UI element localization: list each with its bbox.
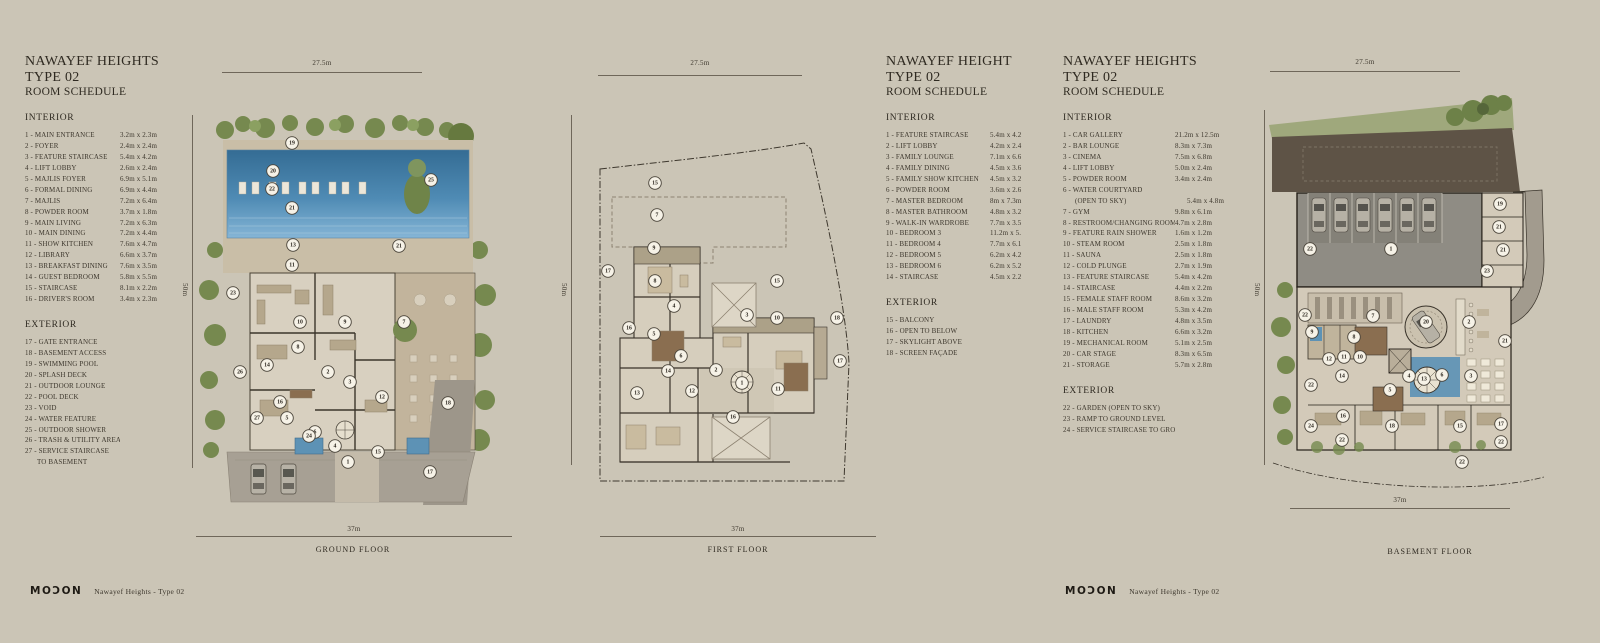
room-dimension: 7.5m x 6.8m bbox=[1175, 153, 1225, 164]
room-dimension: 3.6m x 2.6 bbox=[990, 186, 1044, 197]
room-label: 21 - STORAGE bbox=[1063, 361, 1175, 372]
room-dimension: 3.4m x 2.4m bbox=[1175, 175, 1225, 186]
schedule-row: 9 - MAIN LIVING7.2m x 6.3m bbox=[25, 219, 193, 230]
room-dimension: 11.2m x 5. bbox=[990, 229, 1044, 240]
plan-marker-number: 13 bbox=[290, 243, 296, 249]
room-label: 5 - FAMILY SHOW KITCHEN bbox=[886, 175, 990, 186]
plan-marker-number: 15 bbox=[375, 450, 381, 456]
room-label: 17 - GATE ENTRANCE bbox=[25, 338, 120, 349]
room-label: 2 - BAR LOUNGE bbox=[1063, 142, 1175, 153]
plan-marker-number: 13 bbox=[1421, 377, 1427, 383]
room-dimension: 8.3m x 7.3m bbox=[1175, 142, 1225, 153]
room-label: 5 - MAJLIS FOYER bbox=[25, 175, 120, 186]
plan-marker-number: 22 bbox=[1459, 460, 1465, 466]
room-label: 3 - CINEMA bbox=[1063, 153, 1175, 164]
plan-marker-number: 3 bbox=[349, 380, 352, 386]
room-label: 12 - COLD PLUNGE bbox=[1063, 262, 1175, 273]
room-label: TO BASEMENT bbox=[25, 458, 132, 469]
plan-marker-number: 9 bbox=[653, 246, 656, 252]
plan-marker-number: 8 bbox=[297, 345, 300, 351]
plan-marker-number: 22 bbox=[1302, 313, 1308, 319]
room-label: 11 - BEDROOM 4 bbox=[886, 240, 990, 251]
schedule-title-line: TYPE 02 bbox=[1063, 70, 1225, 86]
plan-marker-number: 2 bbox=[715, 368, 718, 374]
schedule-row: 2 - FOYER2.4m x 2.4m bbox=[25, 142, 193, 153]
plan-marker-number: 23 bbox=[230, 291, 236, 297]
room-label: 17 - SKYLIGHT ABOVE bbox=[886, 338, 990, 349]
exterior-heading: EXTERIOR bbox=[886, 298, 1044, 308]
room-dimension: 6.6m x 3.7m bbox=[120, 251, 193, 262]
plan-marker-number: 22 bbox=[1498, 440, 1504, 446]
room-label: 2 - LIFT LOBBY bbox=[886, 142, 990, 153]
schedule-row: 23 - VOID bbox=[25, 404, 193, 415]
room-dimension: 6.9m x 5.1m bbox=[120, 175, 193, 186]
schedule-row: 16 - MALE STAFF ROOM5.3m x 4.2m bbox=[1063, 306, 1225, 317]
plan-marker-number: 15 bbox=[652, 181, 658, 187]
room-label: 1 - CAR GALLERY bbox=[1063, 131, 1175, 142]
schedule-row: 8 - RESTROOM/CHANGING ROOM4.7m x 2.8m bbox=[1063, 219, 1225, 230]
floor-label-ground: GROUND FLOOR bbox=[195, 545, 511, 554]
schedule-row: 9 - WALK-IN WARDROBE7.7m x 3.5 bbox=[886, 219, 1044, 230]
plan-marker-number: 22 bbox=[1307, 247, 1313, 253]
schedule-row: 2 - LIFT LOBBY4.2m x 2.4 bbox=[886, 142, 1044, 153]
schedule-row: 16 - OPEN TO BELOW bbox=[886, 327, 1044, 338]
schedule-row: 26 - TRASH & UTILITY AREA bbox=[25, 436, 193, 447]
dimension-label: 27.5m bbox=[1270, 58, 1460, 66]
schedule-row: 14 - GUEST BEDROOM5.8m x 5.5m bbox=[25, 273, 193, 284]
water-courtyard bbox=[1410, 357, 1460, 397]
room-dimension: 4.4m x 2.2m bbox=[1175, 284, 1225, 295]
plan-marker-number: 18 bbox=[1389, 424, 1395, 430]
dimension-line bbox=[600, 536, 876, 537]
dimension-line bbox=[192, 115, 193, 468]
plan-marker-number: 8 bbox=[1353, 335, 1356, 341]
room-label: 14 - GUEST BEDROOM bbox=[25, 273, 120, 284]
room-dimension: 8m x 7.3m bbox=[990, 197, 1044, 208]
plan-marker-number: 4 bbox=[334, 444, 337, 450]
schedule-row: 6 - FORMAL DINING6.9m x 4.4m bbox=[25, 186, 193, 197]
room-label: 8 - RESTROOM/CHANGING ROOM bbox=[1063, 219, 1175, 230]
feature-staircase bbox=[336, 421, 354, 439]
room-label: 4 - LIFT LOBBY bbox=[25, 164, 120, 175]
interior-list: 1 - CAR GALLERY21.2m x 12.5m2 - BAR LOUN… bbox=[1063, 131, 1225, 372]
plan-marker-number: 10 bbox=[1357, 355, 1363, 361]
room-label: 15 - STAIRCASE bbox=[25, 284, 120, 295]
schedule-row: 17 - SKYLIGHT ABOVE bbox=[886, 338, 1044, 349]
interior-list: 1 - FEATURE STAIRCASE5.4m x 4.22 - LIFT … bbox=[886, 131, 1044, 284]
plan-marker-number: 14 bbox=[665, 369, 671, 375]
room-label: 7 - GYM bbox=[1063, 208, 1175, 219]
room-dimension: 2.6m x 2.4m bbox=[120, 164, 193, 175]
room-label: 18 - KITCHEN bbox=[1063, 328, 1175, 339]
schedule-title-line: ROOM SCHEDULE bbox=[25, 85, 193, 99]
schedule-row: 15 - STAIRCASE8.1m x 2.2m bbox=[25, 284, 193, 295]
room-dimension: 4.8m x 3.5m bbox=[1175, 317, 1225, 328]
schedule-row: 24 - SERVICE STAIRCASE TO GROUND bbox=[1063, 426, 1225, 437]
schedule-row: 11 - SHOW KITCHEN7.6m x 4.7m bbox=[25, 240, 193, 251]
room-dimension: 4.5m x 2.2 bbox=[990, 273, 1044, 284]
room-label: 12 - BEDROOM 5 bbox=[886, 251, 990, 262]
schedule-row: 4 - FAMILY DINING4.5m x 3.6 bbox=[886, 164, 1044, 175]
room-dimension: 6.6m x 3.2m bbox=[1175, 328, 1225, 339]
schedule-row: 7 - MAJLIS7.2m x 6.4m bbox=[25, 197, 193, 208]
exterior-list: 15 - BALCONY16 - OPEN TO BELOW17 - SKYLI… bbox=[886, 316, 1044, 360]
plan-marker-number: 1 bbox=[741, 381, 744, 387]
schedule-row: 18 - KITCHEN6.6m x 3.2m bbox=[1063, 328, 1225, 339]
earth-fill bbox=[1272, 128, 1520, 192]
schedule-row: 8 - POWDER ROOM3.7m x 1.8m bbox=[25, 208, 193, 219]
first-floor-plan: 157917815431018165621417113121116 bbox=[560, 105, 860, 510]
exterior-heading: EXTERIOR bbox=[25, 320, 193, 330]
water-feature bbox=[407, 438, 429, 454]
plan-marker-number: 27 bbox=[254, 416, 260, 422]
room-dimension: 7.2m x 6.4m bbox=[120, 197, 193, 208]
schedule-row: 3 - CINEMA7.5m x 6.8m bbox=[1063, 153, 1225, 164]
plan-marker-number: 11 bbox=[1341, 355, 1347, 361]
plan-marker-number: 3 bbox=[1470, 374, 1473, 380]
swimming-pool bbox=[223, 140, 473, 273]
room-dimension: 2.4m x 2.4m bbox=[120, 142, 193, 153]
schedule-row: 12 - COLD PLUNGE2.7m x 1.9m bbox=[1063, 262, 1225, 273]
schedule-row: 23 - RAMP TO GROUND LEVEL bbox=[1063, 415, 1225, 426]
footer-left: MOƆON Nawayef Heights - Type 02 bbox=[30, 584, 184, 598]
plan-marker-number: 22 bbox=[269, 187, 275, 193]
schedule-row: 8 - MASTER BATHROOM4.8m x 3.2 bbox=[886, 208, 1044, 219]
schedule-row: 19 - SWIMMING POOL bbox=[25, 360, 193, 371]
room-label: 19 - SWIMMING POOL bbox=[25, 360, 120, 371]
room-schedule-first: NAWAYEF HEIGHT TYPE 02 ROOM SCHEDULE INT… bbox=[886, 54, 1044, 360]
schedule-row: 7 - GYM9.8m x 6.1m bbox=[1063, 208, 1225, 219]
plan-marker-number: 8 bbox=[654, 279, 657, 285]
room-dimension: 6.9m x 4.4m bbox=[120, 186, 193, 197]
plan-marker-number: 22 bbox=[1339, 438, 1345, 444]
plan-marker-number: 17 bbox=[427, 470, 433, 476]
schedule-row: 27 - SERVICE STAIRCASE bbox=[25, 447, 193, 458]
room-label: 7 - MASTER BEDROOM bbox=[886, 197, 990, 208]
schedule-row: 21 - STORAGE5.7m x 2.8m bbox=[1063, 361, 1225, 372]
room-label: 9 - MAIN LIVING bbox=[25, 219, 120, 230]
plan-marker-number: 1 bbox=[347, 460, 350, 466]
plan-marker-number: 18 bbox=[445, 401, 451, 407]
plan-marker-number: 21 bbox=[396, 244, 402, 250]
interior-list: 1 - MAIN ENTRANCE3.2m x 2.3m2 - FOYER2.4… bbox=[25, 131, 193, 306]
schedule-row: 11 - BEDROOM 47.7m x 6.1 bbox=[886, 240, 1044, 251]
schedule-row: 1 - MAIN ENTRANCE3.2m x 2.3m bbox=[25, 131, 193, 142]
room-label: 2 - FOYER bbox=[25, 142, 120, 153]
room-dimension: 7.6m x 4.7m bbox=[120, 240, 193, 251]
schedule-row: 11 - SAUNA2.5m x 1.8m bbox=[1063, 251, 1225, 262]
room-dimension: 3.2m x 2.3m bbox=[120, 131, 193, 142]
room-dimension: 7.7m x 3.5 bbox=[990, 219, 1044, 230]
schedule-row: 5 - FAMILY SHOW KITCHEN4.5m x 3.2 bbox=[886, 175, 1044, 186]
room-dimension: 5.4m x 4.2m bbox=[120, 153, 193, 164]
room-label: 16 - MALE STAFF ROOM bbox=[1063, 306, 1175, 317]
room-dimension: 5.7m x 2.8m bbox=[1175, 361, 1225, 372]
schedule-row: 12 - LIBRARY6.6m x 3.7m bbox=[25, 251, 193, 262]
room-label: 5 - POWDER ROOM bbox=[1063, 175, 1175, 186]
room-label: 20 - CAR STAGE bbox=[1063, 350, 1175, 361]
plan-marker-number: 22 bbox=[1308, 383, 1314, 389]
plan-marker-number: 18 bbox=[834, 316, 840, 322]
plan-marker-number: 1 bbox=[1390, 247, 1393, 253]
schedule-row-continued: TO BASEMENT bbox=[25, 458, 193, 469]
plan-marker-number: 21 bbox=[1500, 248, 1506, 254]
schedule-row: 10 - STEAM ROOM2.5m x 1.8m bbox=[1063, 240, 1225, 251]
schedule-row: 6 - POWDER ROOM3.6m x 2.6 bbox=[886, 186, 1044, 197]
room-dimension: 5.0m x 2.4m bbox=[1175, 164, 1225, 175]
plan-marker-number: 20 bbox=[270, 169, 276, 175]
room-dimension: 7.6m x 3.5m bbox=[120, 262, 193, 273]
plan-marker-number: 17 bbox=[1498, 422, 1504, 428]
room-label: 8 - MASTER BATHROOM bbox=[886, 208, 990, 219]
room-dimension: 4.5m x 3.6 bbox=[990, 164, 1044, 175]
plan-marker-number: 7 bbox=[403, 320, 406, 326]
site-boundary bbox=[1273, 463, 1544, 487]
room-schedule-basement: NAWAYEF HEIGHTS TYPE 02 ROOM SCHEDULE IN… bbox=[1063, 54, 1225, 436]
schedule-row: 1 - FEATURE STAIRCASE5.4m x 4.2 bbox=[886, 131, 1044, 142]
schedule-row: 25 - OUTDOOR SHOWER bbox=[25, 426, 193, 437]
room-label: 19 - MECHANICAL ROOM bbox=[1063, 339, 1175, 350]
room-label: 26 - TRASH & UTILITY AREA bbox=[25, 436, 120, 447]
schedule-row: 13 - FEATURE STAIRCASE5.4m x 4.2m bbox=[1063, 273, 1225, 284]
plan-marker-number: 12 bbox=[689, 389, 695, 395]
schedule-row: 10 - BEDROOM 311.2m x 5. bbox=[886, 229, 1044, 240]
room-label: 13 - BEDROOM 6 bbox=[886, 262, 990, 273]
schedule-row: 5 - MAJLIS FOYER6.9m x 5.1m bbox=[25, 175, 193, 186]
room-label: 25 - OUTDOOR SHOWER bbox=[25, 426, 120, 437]
room-label: 12 - LIBRARY bbox=[25, 251, 120, 262]
dimension-line bbox=[598, 75, 802, 76]
plan-marker-number: 17 bbox=[837, 359, 843, 365]
footer-caption: Nawayef Heights - Type 02 bbox=[94, 587, 184, 596]
schedule-row: 16 - DRIVER'S ROOM3.4m x 2.3m bbox=[25, 295, 193, 306]
plan-marker-number: 4 bbox=[673, 304, 676, 310]
plan-marker-number: 17 bbox=[605, 269, 611, 275]
schedule-row: 19 - MECHANICAL ROOM5.1m x 2.5m bbox=[1063, 339, 1225, 350]
plan-marker-number: 19 bbox=[289, 141, 295, 147]
room-dimension: 4.8m x 3.2 bbox=[990, 208, 1044, 219]
schedule-row-continued: (OPEN TO SKY)5.4m x 4.8m bbox=[1063, 197, 1225, 208]
plan-marker-number: 26 bbox=[237, 370, 243, 376]
room-dimension: 21.2m x 12.5m bbox=[1175, 131, 1225, 142]
schedule-row: 3 - FEATURE STAIRCASE5.4m x 4.2m bbox=[25, 153, 193, 164]
footer-caption: Nawayef Heights - Type 02 bbox=[1129, 587, 1219, 596]
plan-marker-number: 11 bbox=[289, 263, 295, 269]
room-label: 10 - BEDROOM 3 bbox=[886, 229, 990, 240]
plan-marker-number: 9 bbox=[1311, 330, 1314, 336]
plan-marker-number: 24 bbox=[306, 434, 312, 440]
room-label: (OPEN TO SKY) bbox=[1063, 197, 1187, 208]
plan-marker-number: 16 bbox=[1340, 414, 1346, 420]
schedule-row: 18 - BASEMENT ACCESS bbox=[25, 349, 193, 360]
room-label: 16 - DRIVER'S ROOM bbox=[25, 295, 120, 306]
schedule-title-line: TYPE 02 bbox=[886, 70, 1044, 86]
room-label: 3 - FEATURE STAIRCASE bbox=[25, 153, 120, 164]
dimension-line bbox=[196, 536, 512, 537]
plan-marker-number: 5 bbox=[286, 416, 289, 422]
room-dimension: 4.2m x 2.4 bbox=[990, 142, 1044, 153]
schedule-row: 1 - CAR GALLERY21.2m x 12.5m bbox=[1063, 131, 1225, 142]
schedule-row: 18 - SCREEN FAÇADE bbox=[886, 349, 1044, 360]
schedule-row: 15 - BALCONY bbox=[886, 316, 1044, 327]
room-label: 11 - SAUNA bbox=[1063, 251, 1175, 262]
floor-label-first: FIRST FLOOR bbox=[598, 545, 878, 554]
schedule-row: 22 - POOL DECK bbox=[25, 393, 193, 404]
plan-marker-number: 14 bbox=[264, 363, 270, 369]
room-label: 4 - FAMILY DINING bbox=[886, 164, 990, 175]
plan-marker-number: 13 bbox=[634, 391, 640, 397]
room-label: 23 - RAMP TO GROUND LEVEL bbox=[1063, 415, 1175, 426]
plan-marker-number: 19 bbox=[1497, 202, 1503, 208]
plan-marker-number: 24 bbox=[1308, 424, 1314, 430]
room-dimension: 3.7m x 1.8m bbox=[120, 208, 193, 219]
exterior-list: 22 - GARDEN (OPEN TO SKY)23 - RAMP TO GR… bbox=[1063, 404, 1225, 437]
room-label: 27 - SERVICE STAIRCASE bbox=[25, 447, 120, 458]
room-label: 1 - MAIN ENTRANCE bbox=[25, 131, 120, 142]
plan-marker-number: 14 bbox=[1339, 374, 1345, 380]
room-label: 21 - OUTDOOR LOUNGE bbox=[25, 382, 120, 393]
plan-marker-number: 4 bbox=[1408, 374, 1411, 380]
room-label: 18 - BASEMENT ACCESS bbox=[25, 349, 120, 360]
room-label: 24 - SERVICE STAIRCASE TO GROUND bbox=[1063, 426, 1175, 437]
room-dimension: 9.8m x 6.1m bbox=[1175, 208, 1225, 219]
plan-marker-number: 25 bbox=[428, 178, 434, 184]
room-label: 20 - SPLASH DECK bbox=[25, 371, 120, 382]
room-label: 9 - FEATURE RAIN SHOWER bbox=[1063, 229, 1175, 240]
dimension-label: 27.5m bbox=[598, 59, 802, 67]
schedule-row: 22 - GARDEN (OPEN TO SKY) bbox=[1063, 404, 1225, 415]
room-label: 10 - MAIN DINING bbox=[25, 229, 120, 240]
dimension-line bbox=[222, 72, 422, 73]
plan-marker-number: 20 bbox=[1423, 320, 1429, 326]
schedule-row: 17 - GATE ENTRANCE bbox=[25, 338, 193, 349]
room-label: 13 - FEATURE STAIRCASE bbox=[1063, 273, 1175, 284]
room-label: 10 - STEAM ROOM bbox=[1063, 240, 1175, 251]
plan-marker-number: 16 bbox=[730, 415, 736, 421]
room-label: 22 - POOL DECK bbox=[25, 393, 120, 404]
plan-marker-number: 12 bbox=[379, 395, 385, 401]
basement-floor-plan: 1921221212322720298211110124146133225161… bbox=[1255, 95, 1545, 510]
schedule-row: 10 - MAIN DINING7.2m x 4.4m bbox=[25, 229, 193, 240]
plan-marker-number: 2 bbox=[327, 370, 330, 376]
schedule-row: 24 - WATER FEATURE bbox=[25, 415, 193, 426]
room-schedule-ground: NAWAYEF HEIGHTS TYPE 02 ROOM SCHEDULE IN… bbox=[25, 54, 193, 469]
room-label: 3 - FAMILY LOUNGE bbox=[886, 153, 990, 164]
room-label: 23 - VOID bbox=[25, 404, 120, 415]
exterior-list: 17 - GATE ENTRANCE18 - BASEMENT ACCESS19… bbox=[25, 338, 193, 469]
plan-marker-number: 6 bbox=[680, 354, 683, 360]
room-label: 16 - OPEN TO BELOW bbox=[886, 327, 990, 338]
schedule-row: 14 - STAIRCASE4.5m x 2.2 bbox=[886, 273, 1044, 284]
schedule-row: 4 - LIFT LOBBY5.0m x 2.4m bbox=[1063, 164, 1225, 175]
room-label: 11 - SHOW KITCHEN bbox=[25, 240, 120, 251]
room-label: 6 - WATER COURTYARD bbox=[1063, 186, 1175, 197]
room-dimension: 4.5m x 3.2 bbox=[990, 175, 1044, 186]
room-dimension: 5.4m x 4.8m bbox=[1187, 197, 1225, 208]
interior-heading: INTERIOR bbox=[1063, 113, 1225, 123]
room-label: 14 - STAIRCASE bbox=[1063, 284, 1175, 295]
interior-heading: INTERIOR bbox=[25, 113, 193, 123]
plan-marker-number: 15 bbox=[774, 279, 780, 285]
schedule-row: 3 - FAMILY LOUNGE7.1m x 6.6 bbox=[886, 153, 1044, 164]
room-dimension: 8.6m x 3.2m bbox=[1175, 295, 1225, 306]
schedule-title-line: NAWAYEF HEIGHTS bbox=[1063, 54, 1225, 70]
schedule-row: 20 - SPLASH DECK bbox=[25, 371, 193, 382]
room-label: 24 - WATER FEATURE bbox=[25, 415, 120, 426]
exterior-heading: EXTERIOR bbox=[1063, 386, 1225, 396]
room-dimension: 2.5m x 1.8m bbox=[1175, 240, 1225, 251]
interior-heading: INTERIOR bbox=[886, 113, 1044, 123]
plan-marker-number: 10 bbox=[774, 316, 780, 322]
room-label: 4 - LIFT LOBBY bbox=[1063, 164, 1175, 175]
room-dimension: 2.5m x 1.8m bbox=[1175, 251, 1225, 262]
room-dimension: 1.6m x 1.2m bbox=[1175, 229, 1225, 240]
dimension-line bbox=[1270, 71, 1460, 72]
schedule-row: 17 - LAUNDRY4.8m x 3.5m bbox=[1063, 317, 1225, 328]
floor-label-basement: BASEMENT FLOOR bbox=[1330, 547, 1530, 556]
plan-marker-number: 7 bbox=[1372, 314, 1375, 320]
plan-marker-number: 16 bbox=[626, 326, 632, 332]
schedule-row: 20 - CAR STAGE8.3m x 6.5m bbox=[1063, 350, 1225, 361]
schedule-row: 14 - STAIRCASE4.4m x 2.2m bbox=[1063, 284, 1225, 295]
schedule-row: 12 - BEDROOM 56.2m x 4.2 bbox=[886, 251, 1044, 262]
room-dimension: 7.1m x 6.6 bbox=[990, 153, 1044, 164]
plan-marker-number: 21 bbox=[289, 206, 295, 212]
room-dimension: 7.7m x 6.1 bbox=[990, 240, 1044, 251]
plan-marker-number: 12 bbox=[1326, 357, 1332, 363]
room-label: 7 - MAJLIS bbox=[25, 197, 120, 208]
brochure-page: NAWAYEF HEIGHTS TYPE 02 ROOM SCHEDULE IN… bbox=[0, 0, 1600, 643]
plan-marker-number: 6 bbox=[1441, 373, 1444, 379]
plan-marker-number: 16 bbox=[277, 400, 283, 406]
schedule-row: 15 - FEMALE STAFF ROOM8.6m x 3.2m bbox=[1063, 295, 1225, 306]
plan-marker-number: 9 bbox=[344, 320, 347, 326]
room-label: 1 - FEATURE STAIRCASE bbox=[886, 131, 990, 142]
plan-marker-number: 7 bbox=[656, 213, 659, 219]
plan-marker-number: 2 bbox=[1468, 320, 1471, 326]
room-label: 15 - BALCONY bbox=[886, 316, 990, 327]
schedule-row: 2 - BAR LOUNGE8.3m x 7.3m bbox=[1063, 142, 1225, 153]
dimension-label: 50m bbox=[181, 283, 189, 296]
plan-marker-number: 21 bbox=[1502, 339, 1508, 345]
plan-marker-number: 5 bbox=[1389, 388, 1392, 394]
schedule-title-line: ROOM SCHEDULE bbox=[1063, 85, 1225, 99]
plan-marker-number: 11 bbox=[775, 387, 781, 393]
room-dimension: 6.2m x 4.2 bbox=[990, 251, 1044, 262]
room-label: 9 - WALK-IN WARDROBE bbox=[886, 219, 990, 230]
room-label: 18 - SCREEN FAÇADE bbox=[886, 349, 990, 360]
schedule-title-line: ROOM SCHEDULE bbox=[886, 85, 1044, 99]
plan-marker-number: 3 bbox=[746, 313, 749, 319]
schedule-row: 6 - WATER COURTYARD bbox=[1063, 186, 1225, 197]
room-dimension: 5.4m x 4.2m bbox=[1175, 273, 1225, 284]
plan-marker-number: 15 bbox=[1457, 424, 1463, 430]
ground-floor-plan: 1920252221131121231097814262312162756244… bbox=[195, 100, 505, 505]
schedule-row: 13 - BEDROOM 66.2m x 5.2 bbox=[886, 262, 1044, 273]
room-label: 8 - POWDER ROOM bbox=[25, 208, 120, 219]
room-label: 15 - FEMALE STAFF ROOM bbox=[1063, 295, 1175, 306]
room-label: 17 - LAUNDRY bbox=[1063, 317, 1175, 328]
dimension-label: 37m bbox=[600, 525, 876, 533]
plan-marker-number: 23 bbox=[1484, 269, 1490, 275]
plan-marker-number: 10 bbox=[297, 320, 303, 326]
room-dimension: 3.4m x 2.3m bbox=[120, 295, 193, 306]
dimension-label: 27.5m bbox=[222, 59, 422, 67]
room-label: 6 - FORMAL DINING bbox=[25, 186, 120, 197]
room-dimension: 7.2m x 6.3m bbox=[120, 219, 193, 230]
room-dimension: 5.1m x 2.5m bbox=[1175, 339, 1225, 350]
plan-marker-number: 5 bbox=[653, 332, 656, 338]
